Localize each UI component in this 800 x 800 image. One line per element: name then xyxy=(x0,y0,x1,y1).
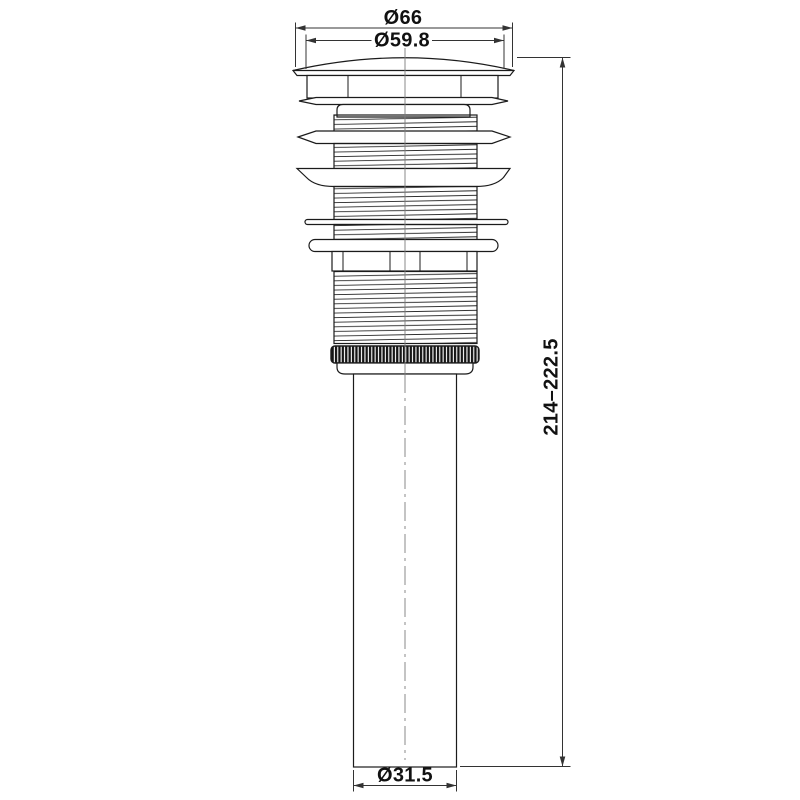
arrow-left-icon xyxy=(354,783,364,788)
dim-tube-diameter: Ø31.5 xyxy=(354,765,457,792)
thread-section-2 xyxy=(334,144,477,169)
arrow-left-icon xyxy=(306,38,316,43)
flat-washer xyxy=(305,220,508,225)
pop-up-drain-technical-drawing: Ø66 Ø59.8 214–222.5 Ø31.5 xyxy=(0,0,800,800)
arrow-right-icon xyxy=(447,783,457,788)
cap-flange-disc xyxy=(299,98,508,105)
skirt-outline xyxy=(307,76,498,99)
dim-label-cap-dome-diameter: Ø59.8 xyxy=(374,30,430,52)
arrow-down-icon xyxy=(560,757,566,767)
arrow-left-icon xyxy=(296,25,306,30)
arrow-right-icon xyxy=(503,25,513,30)
cone-washer xyxy=(298,131,510,144)
rubber-gasket xyxy=(297,169,510,187)
hex-nut xyxy=(332,252,477,272)
arrow-up-icon xyxy=(560,58,566,68)
dim-label-tube-diameter: Ø31.5 xyxy=(377,765,433,787)
drawing-canvas: Ø66 Ø59.8 214–222.5 Ø31.5 xyxy=(0,0,800,800)
thread-section-1 xyxy=(334,115,477,132)
cap-dome xyxy=(293,58,514,76)
cap-skirt xyxy=(307,76,498,99)
hex-nut-body xyxy=(332,252,477,272)
dome-outline xyxy=(293,58,514,76)
thread-section-4 xyxy=(334,225,477,240)
mounting-flange xyxy=(309,240,498,252)
drain-part xyxy=(293,58,514,767)
dim-label-overall-height: 214–222.5 xyxy=(541,338,563,435)
arrow-right-icon xyxy=(494,38,504,43)
thread-section-5 xyxy=(334,272,477,344)
thread-section-3 xyxy=(334,187,477,220)
dim-label-outer-cap-diameter: Ø66 xyxy=(384,7,423,29)
